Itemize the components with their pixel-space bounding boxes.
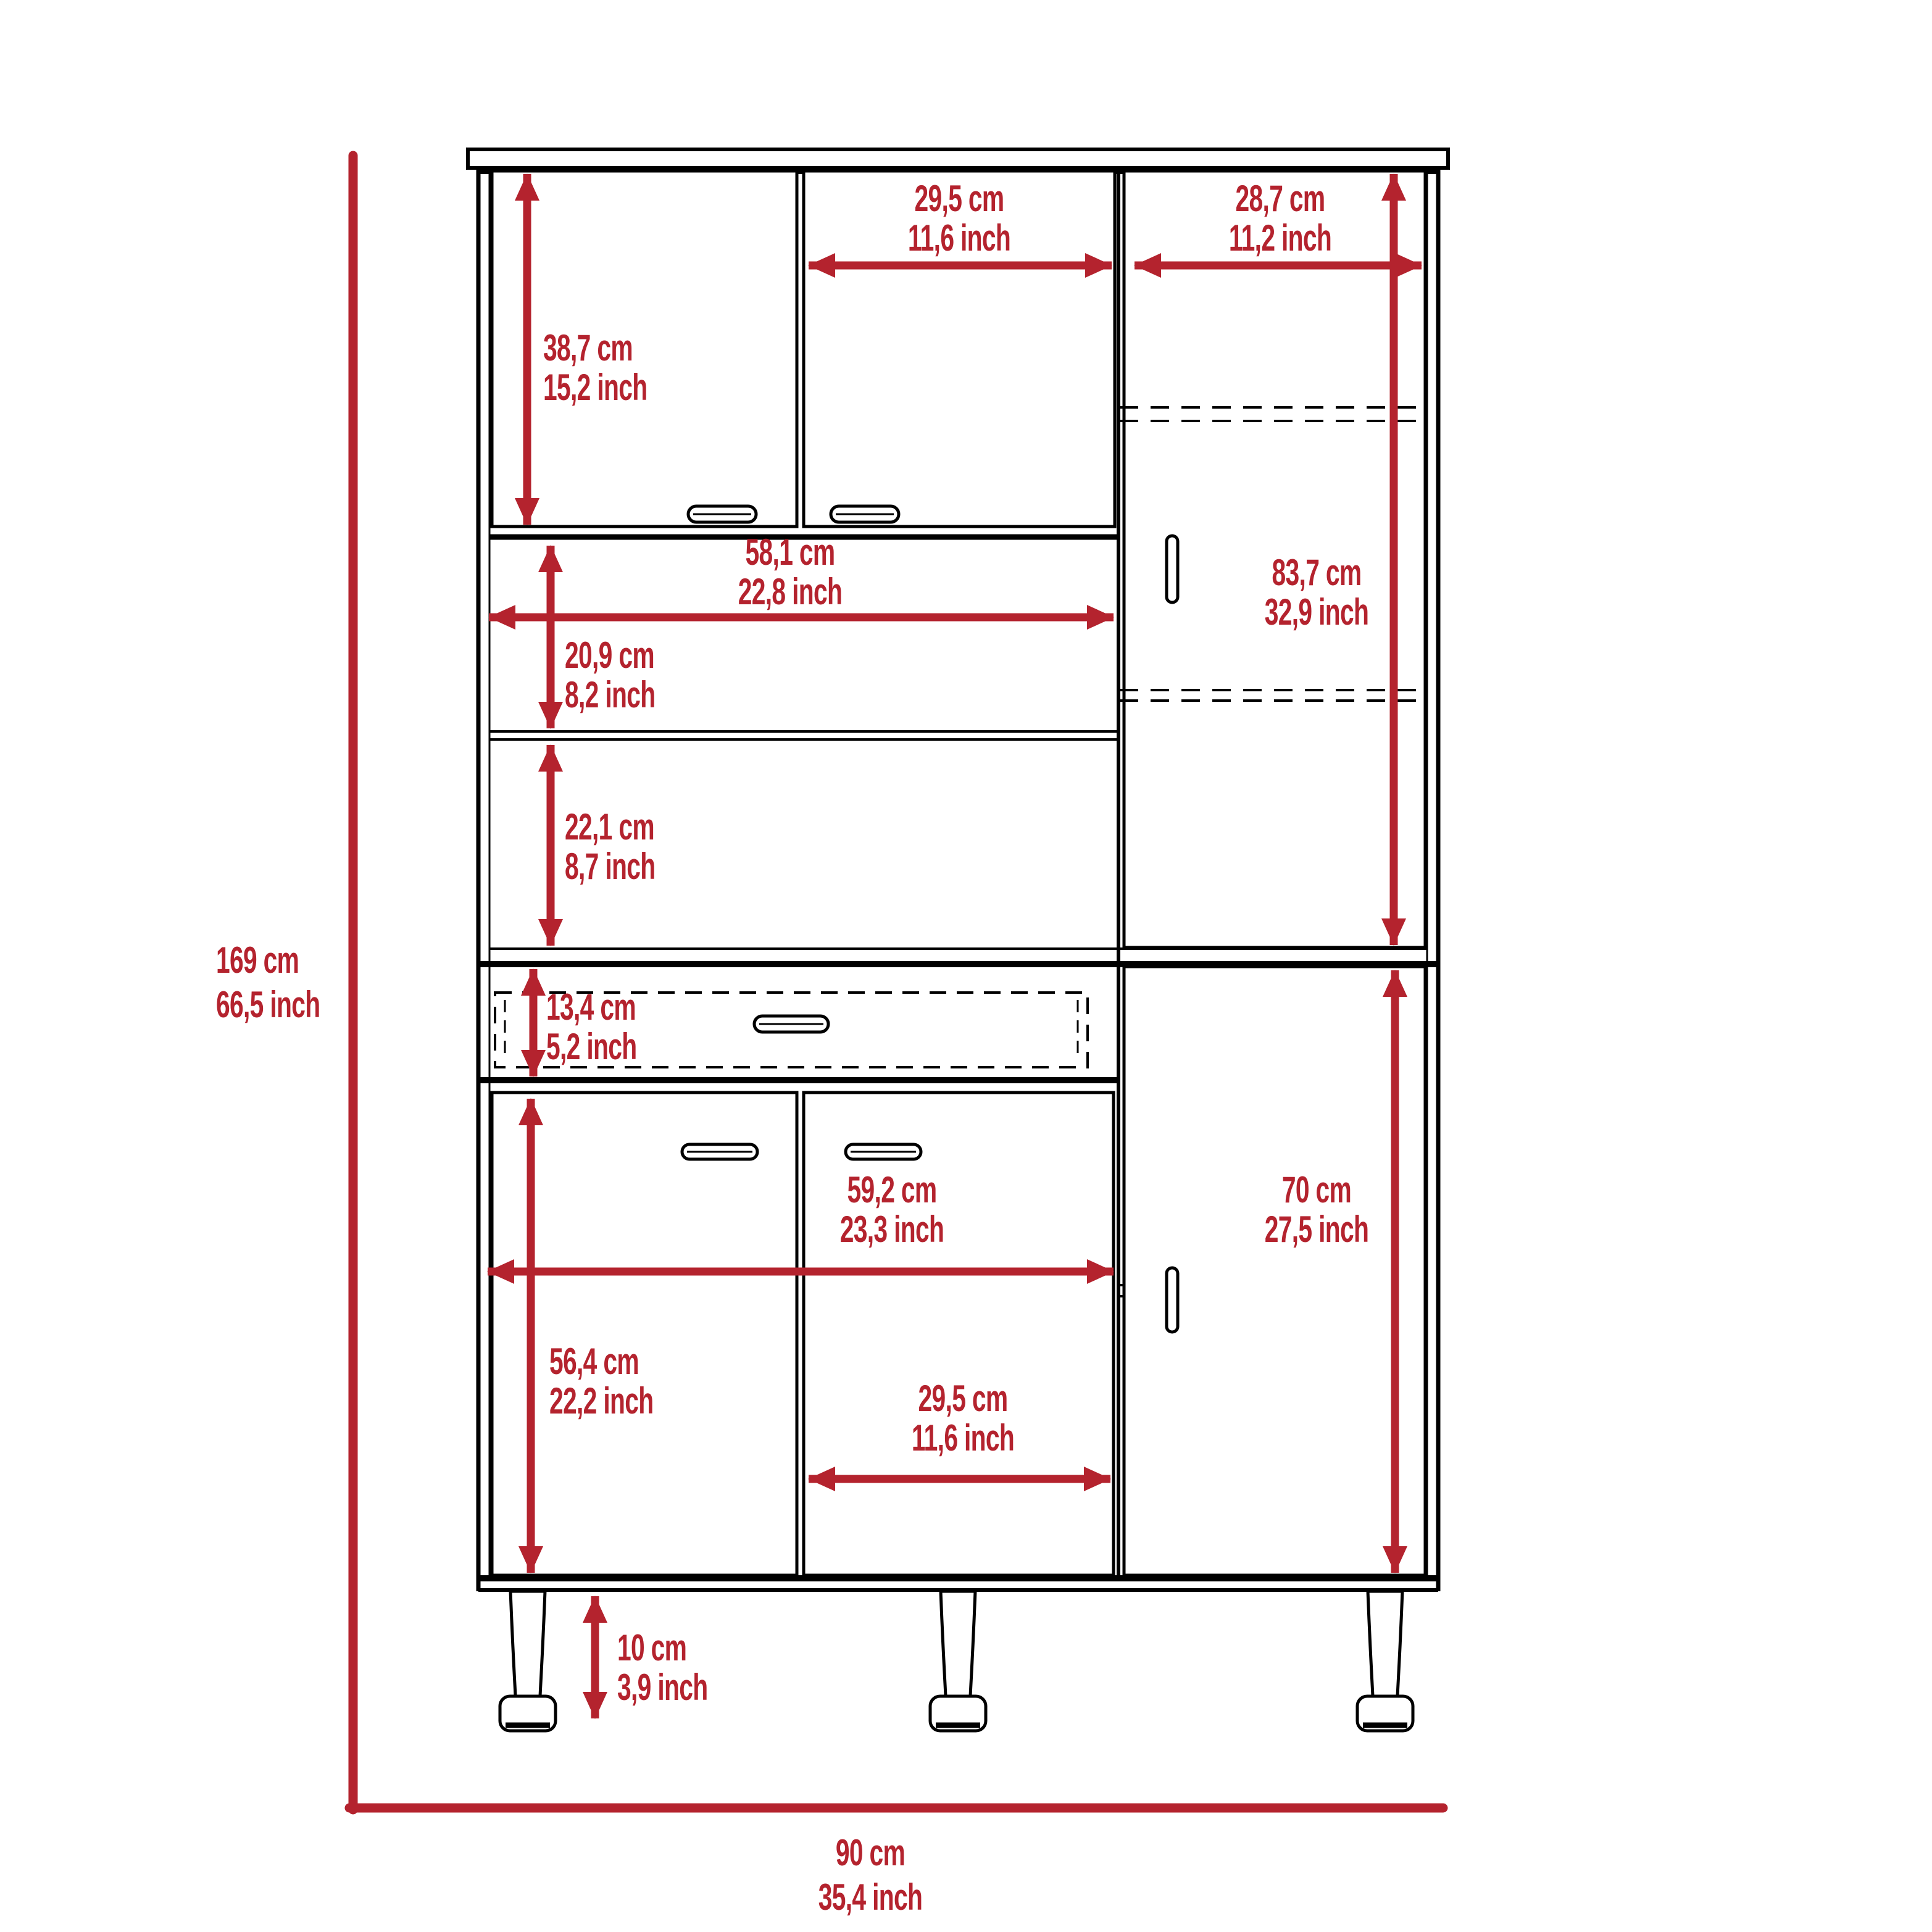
- svg-text:32,9 inch: 32,9 inch: [1265, 591, 1368, 633]
- dim-label-bottom-left-door-height: 56,4 cm 22,2 inch: [549, 1341, 653, 1422]
- dim-label-leg-height: 10 cm 3,9 inch: [617, 1627, 707, 1708]
- svg-text:70 cm: 70 cm: [1282, 1169, 1351, 1210]
- dim-label-drawer-height: 13,4 cm 5,2 inch: [546, 986, 636, 1067]
- dim-label-top-right-door-width: 28,7 cm 11,2 inch: [1229, 178, 1331, 259]
- svg-text:20,9 cm: 20,9 cm: [565, 635, 654, 676]
- svg-text:29,5 cm: 29,5 cm: [915, 178, 1004, 219]
- svg-text:22,8 inch: 22,8 inch: [738, 571, 842, 612]
- svg-text:58,1 cm: 58,1 cm: [746, 531, 835, 573]
- svg-text:8,2 inch: 8,2 inch: [565, 674, 655, 715]
- svg-text:83,7 cm: 83,7 cm: [1272, 552, 1362, 593]
- dim-label-bottom-middle-door-width: 29,5 cm 11,6 inch: [912, 1378, 1014, 1459]
- svg-text:27,5 inch: 27,5 inch: [1265, 1209, 1368, 1250]
- dim-label-upper-right-door-height: 83,7 cm 32,9 inch: [1265, 552, 1368, 633]
- svg-text:22,1 cm: 22,1 cm: [565, 806, 654, 847]
- svg-text:23,3 inch: 23,3 inch: [840, 1209, 944, 1250]
- lower-right-door-handle[interactable]: [1167, 1268, 1178, 1332]
- dim-label-top-left-door-height: 38,7 cm 15,2 inch: [543, 327, 647, 408]
- lower-left-door[interactable]: [492, 1093, 797, 1575]
- lower-middle-door[interactable]: [804, 1093, 1114, 1575]
- leg-middle: [941, 1591, 975, 1696]
- svg-text:59,2 cm: 59,2 cm: [847, 1169, 937, 1210]
- dim-label-bottom-doors-width: 59,2 cm 23,3 inch: [840, 1169, 944, 1250]
- upper-left-door[interactable]: [492, 171, 797, 527]
- cabinet-dimension-diagram: 38,7 cm 15,2 inch 29,5 cm 11,6 inch 28,7…: [0, 0, 1932, 1932]
- dim-label-overall-height: 169 cm 66,5 inch: [216, 939, 320, 1025]
- svg-text:11,6 inch: 11,6 inch: [912, 1417, 1014, 1459]
- svg-text:8,7 inch: 8,7 inch: [565, 846, 655, 887]
- svg-text:29,5 cm: 29,5 cm: [918, 1378, 1008, 1419]
- svg-text:5,2 inch: 5,2 inch: [546, 1026, 636, 1067]
- dim-label-overall-width: 90 cm 35,4 inch: [818, 1832, 922, 1918]
- dim-label-top-middle-door-width: 29,5 cm 11,6 inch: [908, 178, 1010, 259]
- svg-text:11,6 inch: 11,6 inch: [908, 217, 1010, 259]
- svg-text:28,7 cm: 28,7 cm: [1236, 178, 1325, 219]
- svg-text:66,5 inch: 66,5 inch: [216, 984, 320, 1025]
- leg-right: [1368, 1591, 1402, 1696]
- cabinet-top-panel: [468, 149, 1448, 168]
- leg-left: [510, 1591, 545, 1696]
- svg-text:56,4 cm: 56,4 cm: [549, 1341, 639, 1382]
- svg-text:38,7 cm: 38,7 cm: [543, 327, 633, 368]
- svg-text:13,4 cm: 13,4 cm: [546, 986, 636, 1028]
- dim-label-shelf-width: 58,1 cm 22,8 inch: [738, 531, 842, 612]
- svg-text:22,2 inch: 22,2 inch: [549, 1380, 653, 1422]
- svg-text:169 cm: 169 cm: [216, 939, 299, 981]
- svg-text:11,2 inch: 11,2 inch: [1229, 217, 1331, 259]
- svg-text:35,4 inch: 35,4 inch: [818, 1876, 922, 1918]
- svg-text:10 cm: 10 cm: [617, 1627, 686, 1668]
- svg-text:3,9 inch: 3,9 inch: [617, 1667, 707, 1708]
- dim-label-lower-shelf-height: 22,1 cm 8,7 inch: [565, 806, 655, 887]
- svg-text:15,2 inch: 15,2 inch: [543, 367, 647, 408]
- svg-text:90 cm: 90 cm: [836, 1832, 905, 1873]
- dim-label-upper-shelf-height: 20,9 cm 8,2 inch: [565, 635, 655, 715]
- upper-right-door-handle[interactable]: [1167, 536, 1178, 602]
